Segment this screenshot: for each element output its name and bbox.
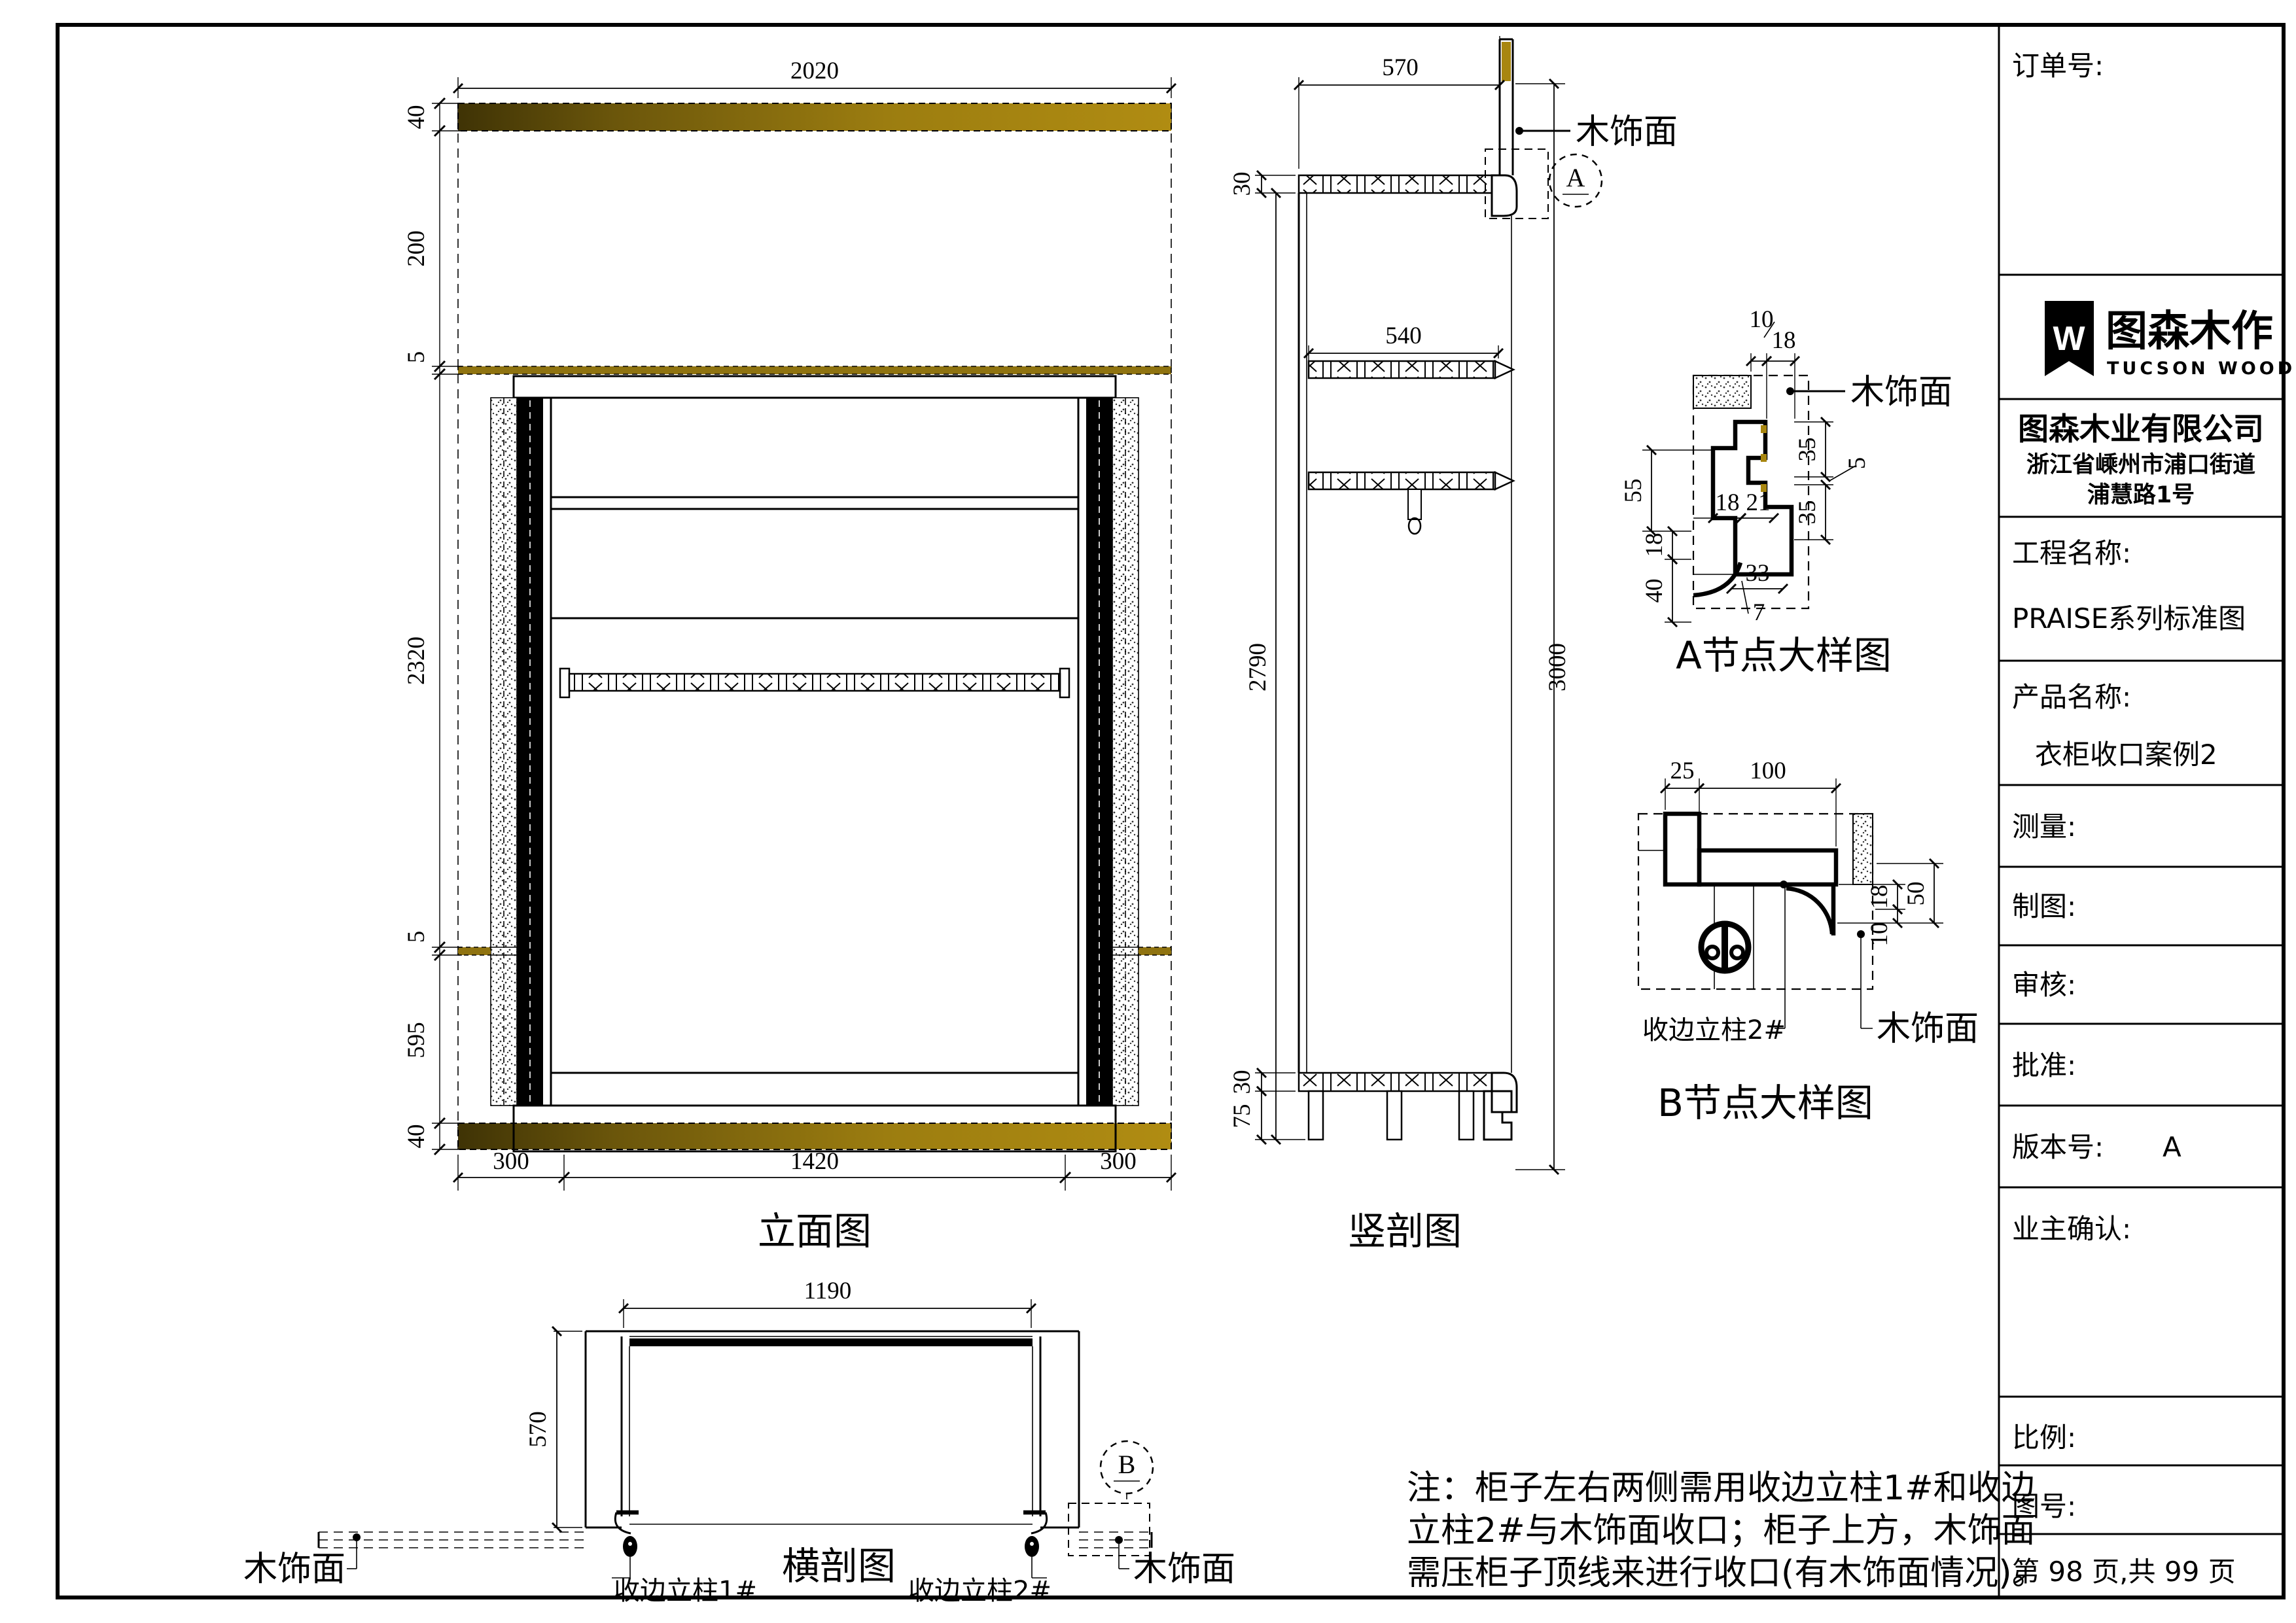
dim-30-top: 30 xyxy=(1229,172,1256,196)
detail-b-view: 25 100 18 10 50 收边立柱2# 木饰面 B节点大样图 xyxy=(1638,758,1979,1125)
detail-a-title: A节点大样图 xyxy=(1676,633,1892,678)
dim-a-35-top: 35 xyxy=(1794,438,1821,462)
dim-a-33: 33 xyxy=(1746,560,1770,587)
order-no-label: 订单号: xyxy=(2012,50,2104,82)
brand-en: TUCSON WOOD xyxy=(2107,358,2295,379)
detail-a-bubble-letter: A xyxy=(1566,163,1585,192)
note-line-1: 注：柜子左右两侧需用收边立柱1#和收边 xyxy=(1407,1469,2036,1508)
dim-40-bottom: 40 xyxy=(403,1125,430,1149)
dim-a-18-inner: 18 xyxy=(1716,489,1740,516)
hsection-wood-left: 木饰面 xyxy=(243,1550,345,1589)
dim-a-35-bottom: 35 xyxy=(1794,500,1821,525)
rod-bracket-left xyxy=(560,669,569,697)
detail-b-title: B节点大样图 xyxy=(1657,1081,1873,1125)
approver-label: 批准: xyxy=(2012,1049,2076,1081)
elevation-top-strip xyxy=(458,366,1171,374)
brand-cn: 图森木作 xyxy=(2106,307,2273,356)
scale-label: 比例: xyxy=(2012,1422,2076,1454)
hsection-right-foot xyxy=(1023,1512,1047,1557)
owner-confirm-label: 业主确认: xyxy=(2012,1213,2131,1245)
dim-570-hsection: 570 xyxy=(525,1411,552,1448)
version-value: A xyxy=(2163,1131,2181,1163)
detail-a-wood-label: 木饰面 xyxy=(1850,373,1952,412)
vsection-title: 竖剖图 xyxy=(1348,1209,1462,1253)
hsection-post1-label: 收边立柱1# xyxy=(614,1576,757,1606)
dim-540-shelf: 540 xyxy=(1385,323,1422,349)
company-address-2: 浦慧路1号 xyxy=(2087,482,2195,508)
drafter-label: 制图: xyxy=(2012,890,2076,922)
elevation-bottom-molding xyxy=(458,1123,1171,1149)
vsection-shelf-2 xyxy=(1309,472,1495,489)
vsection-dims: 570 30 540 2790 3000 30 75 xyxy=(1229,36,1571,1170)
dim-b-25: 25 xyxy=(1670,758,1695,784)
vsection-rod-bracket xyxy=(1408,489,1421,519)
dim-a-21: 21 xyxy=(1746,489,1771,516)
dim-595: 595 xyxy=(403,1022,430,1058)
elevation-view: 2020 40 200 5 2320 5 595 40 xyxy=(403,58,1171,1253)
dim-a-18-left: 18 xyxy=(1641,533,1668,557)
hanging-rod xyxy=(569,674,1060,691)
vsection-plinth-end xyxy=(1484,1091,1511,1140)
detail-a-right-dims: 35 5 35 xyxy=(1794,422,1871,540)
logo-letter: W xyxy=(2053,320,2085,358)
dim-2020: 2020 xyxy=(790,58,839,84)
detail-b-bubble-letter: B xyxy=(1118,1450,1136,1479)
product-label: 产品名称: xyxy=(2012,681,2131,713)
vsection-wood-label: 木饰面 xyxy=(1576,113,1678,152)
figure-no-label: 图号: xyxy=(2012,1490,2076,1522)
vsection-top-corner xyxy=(1492,175,1517,216)
version-label: 版本号: xyxy=(2012,1131,2104,1163)
title-block: 订单号: W 图森木作 TUCSON WOOD 图森木业有限公司 浙江省嵊州市浦… xyxy=(1999,25,2295,1597)
project-value: PRAISE系列标准图 xyxy=(2012,602,2246,635)
dim-a-18-top: 18 xyxy=(1772,327,1796,354)
detail-b-wall-block xyxy=(1853,814,1873,884)
dim-1190: 1190 xyxy=(804,1278,852,1304)
detail-b-post xyxy=(1665,814,1699,884)
vertical-section-view: 570 30 540 2790 3000 30 75 xyxy=(1229,36,1678,1253)
vsection-shelf-1 xyxy=(1309,361,1495,378)
dim-b-50: 50 xyxy=(1903,882,1930,906)
elevation-bottom-dims: 300 1420 300 xyxy=(458,1148,1171,1191)
hsection-post2-label: 收边立柱2# xyxy=(908,1576,1051,1606)
detail-b-wood-label: 木饰面 xyxy=(1877,1009,1979,1049)
hsection-labels: 木饰面 收边立柱1# 收边立柱2# 木饰面 xyxy=(243,1533,1235,1606)
detail-a-view: 10 18 55 18 40 18 21 33 7 xyxy=(1620,306,1952,678)
vsection-top-panel xyxy=(1299,175,1492,193)
dim-30-bottom: 30 xyxy=(1229,1070,1256,1094)
note-line-2: 立柱2#与木饰面收口；柜子上方，木饰面 xyxy=(1407,1511,2036,1550)
dim-300-right: 300 xyxy=(1100,1148,1137,1175)
dim-3000: 3000 xyxy=(1544,643,1571,691)
hsection-back-panel xyxy=(629,1338,1033,1346)
dim-200: 200 xyxy=(403,230,430,267)
horizontal-section-view: 1190 570 B 木饰面 收边立柱1# 收边立柱2# xyxy=(243,1278,1235,1606)
elevation-top-cap xyxy=(514,376,1116,398)
project-label: 工程名称: xyxy=(2012,537,2131,569)
dim-a-40: 40 xyxy=(1641,579,1668,603)
dim-300-left: 300 xyxy=(493,1148,529,1175)
dim-5-mid: 5 xyxy=(403,931,430,943)
page-info: 第 98 页,共 99 页 xyxy=(2012,1556,2236,1588)
rod-bracket-right xyxy=(1060,669,1069,697)
note-line-3: 需压柜子顶线来进行收口(有木饰面情况)。 xyxy=(1407,1554,2046,1593)
vsection-rod xyxy=(1409,518,1421,534)
measure-label: 测量: xyxy=(2012,811,2076,843)
elevation-right-post xyxy=(1086,398,1112,1106)
dim-2790: 2790 xyxy=(1245,643,1271,691)
detail-a-inner-dims: 18 21 33 7 xyxy=(1713,489,1783,626)
detail-b-cam-fitting xyxy=(1701,922,1748,972)
dim-5-top: 5 xyxy=(403,351,430,364)
vsection-bottom-panel xyxy=(1299,1073,1492,1091)
dim-75-plinth: 75 xyxy=(1229,1104,1256,1128)
page-border xyxy=(58,25,2284,1597)
hsection-dims: 1190 570 xyxy=(525,1278,1031,1527)
detail-b-slab xyxy=(1699,850,1836,884)
hsection-wood-right: 木饰面 xyxy=(1133,1550,1235,1589)
drawing-sheet: 2020 40 200 5 2320 5 595 40 xyxy=(0,0,2296,1623)
dim-2320: 2320 xyxy=(403,637,430,685)
detail-b-top-dims: 25 100 xyxy=(1665,758,1836,846)
dim-a-55: 55 xyxy=(1620,479,1647,503)
dim-570-depth: 570 xyxy=(1382,54,1419,81)
elevation-top-dim: 2020 xyxy=(458,58,1171,98)
notes: 注：柜子左右两侧需用收边立柱1#和收边 立柱2#与木饰面收口；柜子上方，木饰面 … xyxy=(1407,1469,2046,1593)
elevation-left-post xyxy=(517,398,543,1106)
checker-label: 审核: xyxy=(2012,969,2076,1001)
company-name: 图森木业有限公司 xyxy=(2018,411,2264,447)
detail-b-labels: 收边立柱2# 木饰面 xyxy=(1642,884,1979,1049)
elevation-top-molding xyxy=(458,103,1171,131)
dim-b-18: 18 xyxy=(1866,885,1893,909)
vsection-gold-strip xyxy=(1502,42,1511,81)
dim-a-7: 7 xyxy=(1753,599,1765,626)
brand-logo: W 图森木作 TUCSON WOOD xyxy=(2045,301,2295,379)
detail-a-top-dims: 10 18 xyxy=(1750,306,1796,419)
hsection-left-foot xyxy=(615,1512,639,1557)
elevation-title: 立面图 xyxy=(758,1209,872,1253)
dim-40-top: 40 xyxy=(403,105,430,130)
detail-b-post-label: 收边立柱2# xyxy=(1642,1015,1786,1045)
dim-b-100: 100 xyxy=(1750,758,1786,784)
company-address-1: 浙江省嵊州市浦口街道 xyxy=(2026,452,2255,478)
product-value: 衣柜收口案例2 xyxy=(2035,739,2217,771)
detail-b-dashed-box xyxy=(1638,814,1873,989)
elevation-left-dims: 40 200 5 2320 5 595 40 xyxy=(403,98,462,1155)
dim-a-5: 5 xyxy=(1844,457,1871,470)
dim-1420: 1420 xyxy=(790,1148,839,1175)
hsection-title: 横剖图 xyxy=(782,1544,896,1588)
detail-a-ceiling-block xyxy=(1693,375,1751,408)
vsection-annotations: 木饰面 A xyxy=(1515,113,1678,207)
hsection-b-marker: B xyxy=(1069,1441,1153,1556)
dim-b-10: 10 xyxy=(1866,922,1893,947)
